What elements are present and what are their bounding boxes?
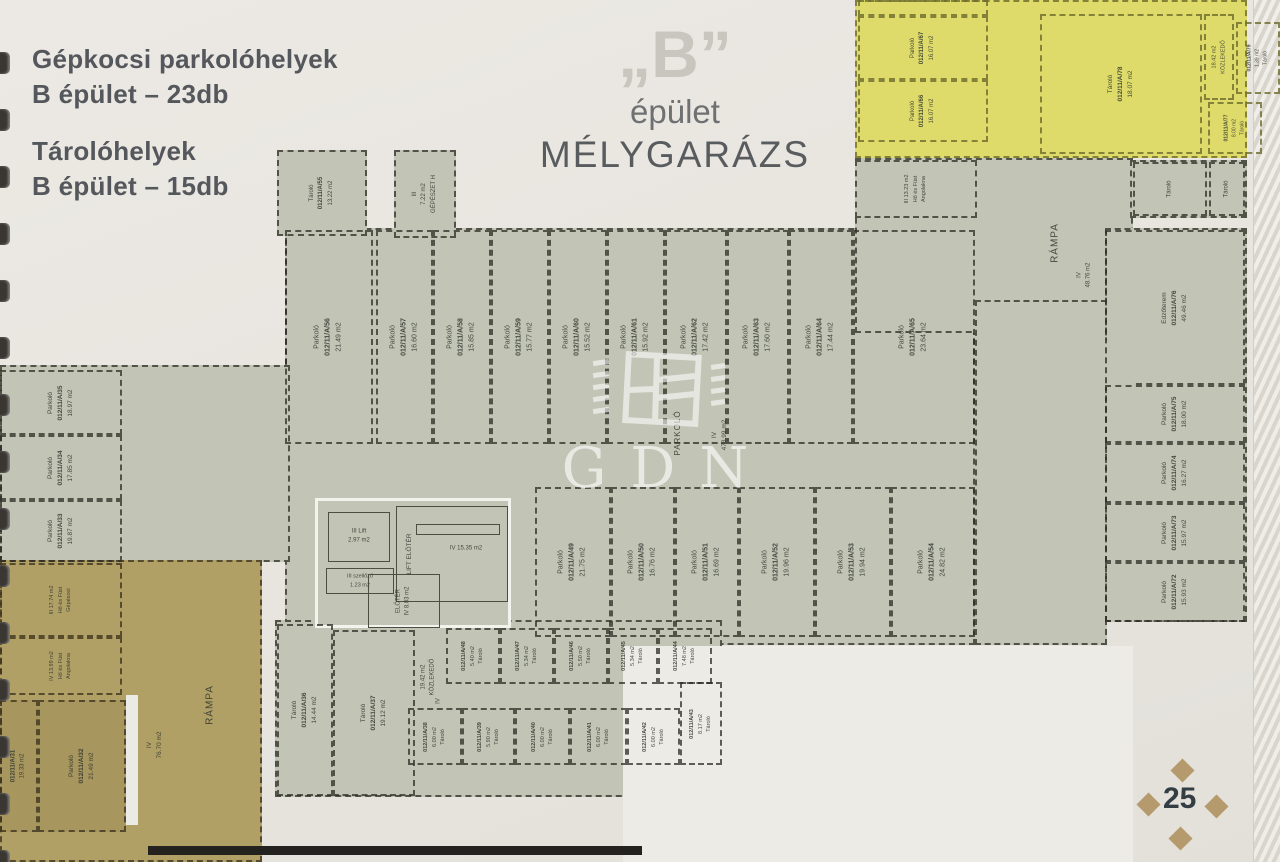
- binding-hole: [0, 679, 10, 701]
- room-parkolo-a51: Parkoló012/11/A/5116.69 m2: [675, 487, 739, 637]
- room-parkolo-a50: Parkoló012/11/A/5016.76 m2: [611, 487, 675, 637]
- room-tarolo-ne-2: Tároló: [1209, 162, 1245, 216]
- room-tarolo-a43: 012/11/A/438.17 m2Tároló: [680, 682, 722, 765]
- binding-hole: [0, 622, 10, 644]
- legend-storage-count: B épület – 15db: [32, 169, 338, 204]
- room-parkolo-y-cut: [858, 0, 988, 16]
- room-tarolo-a37: Tároló012/11/A/3719.12 m2: [333, 630, 415, 796]
- binding-hole: [0, 508, 10, 530]
- room-tarolo-a42: 012/11/A/426.00 m2Tároló: [627, 708, 680, 765]
- binding-hole: [0, 166, 10, 188]
- brochure-page: { "page": { "legend": { "line1": "Gépkoc…: [0, 0, 1280, 862]
- room-tarolo-a46: 012/11/A/465.50 m2Tároló: [554, 628, 608, 684]
- room-edzoterem-a76: Edzőterem012/11/A/7649.46 m2: [1105, 230, 1245, 385]
- room-parkolo-a58: Parkoló012/11/A/5815.85 m2: [433, 230, 491, 444]
- room-lift: III Lift2.97 m2: [328, 512, 390, 562]
- room-parkolo-a57: Parkoló012/11/A/5716.60 m2: [376, 230, 433, 444]
- spiral-binding: [0, 0, 14, 862]
- room-tarolo-a40: 012/11/A/406.00 m2Tároló: [515, 708, 570, 765]
- binding-hole: [0, 280, 10, 302]
- legend: Gépkocsi parkolóhelyek B épület – 23db T…: [32, 42, 338, 204]
- page-number-block: 25: [1128, 756, 1238, 852]
- binding-hole: [0, 223, 10, 245]
- room-parkolo-a54: Parkoló012/11/A/5424.82 m2: [891, 487, 975, 637]
- legend-parking-title: Gépkocsi parkolóhelyek: [32, 42, 338, 77]
- label-lift-eloter-area: IV 15.35 m2: [428, 534, 504, 564]
- room-parkolo-a32: Parkoló012/11/A/3221.49 m2: [38, 700, 126, 832]
- room-ho-fust-gepeszet: III 17.74 m2Hő és FüstGépészet: [0, 563, 122, 637]
- legend-parking-count: B épület – 23db: [32, 77, 338, 112]
- room-parkolo-a52: Parkoló012/11/A/5219.96 m2: [739, 487, 815, 637]
- room-ho-fust-angolakna-ne: III 13.23 m2Hő és FüstAngolakna: [855, 160, 977, 218]
- label-parkolo-main: PARKOLÓ: [655, 375, 700, 490]
- room-parkolo-a49: Parkoló012/11/A/4921.75 m2: [535, 487, 611, 637]
- room-parkolo-a74: Parkoló012/11/A/7416.27 m2: [1105, 443, 1245, 503]
- room-parkolo-a72: Parkoló012/11/A/7215.93 m2: [1105, 562, 1245, 622]
- binding-hole: [0, 451, 10, 473]
- label-rampa-ne-area: IV48.76 m2: [1055, 230, 1115, 320]
- diamond-icon: [1136, 792, 1160, 816]
- page-number: 25: [1163, 782, 1196, 816]
- room-parkolo-a53: Parkoló012/11/A/5319.94 m2: [815, 487, 891, 637]
- room-tarolo-a44: 012/11/A/447.48 m2Tároló: [658, 628, 712, 684]
- label-rampa-sw-area: IV76.70 m2: [125, 690, 185, 800]
- binding-hole: [0, 850, 10, 862]
- room-tarolo-a77: 012/11/A/778.00 m2Tároló: [1208, 102, 1262, 154]
- zone-east-corridor: [975, 300, 1107, 645]
- wall-south-boundary: [148, 846, 642, 855]
- legend-storage-title: Tárolóhelyek: [32, 134, 338, 169]
- binding-hole: [0, 337, 10, 359]
- room-parkolo-a65: Parkoló012/11/A/6523.64 m2: [853, 230, 975, 444]
- binding-hole: [0, 52, 10, 74]
- room-tarolo-a38: 012/11/A/386.00 m2Tároló: [408, 708, 462, 765]
- diamond-icon: [1170, 758, 1194, 782]
- room-tarolo-a36: Tároló012/11/A/3614.44 m2: [277, 624, 333, 796]
- room-gepeszet-h: III7.22 m2GÉPÉSZET H: [394, 150, 456, 238]
- room-tarolo-a79: 012/11/A/791.39 m2Tároló: [1236, 22, 1280, 94]
- title-block: „B” épület MÉLYGARÁZS: [505, 18, 845, 178]
- room-parkolo-a33: Parkoló012/11/A/3319.87 m2: [0, 500, 122, 562]
- room-eloter: ELŐTÉRIV 8.03 m2: [368, 574, 440, 628]
- room-parkolo-a73: Parkoló012/11/A/7315.97 m2: [1105, 503, 1245, 562]
- room-parkolo-a60: Parkoló012/11/A/6015.52 m2: [549, 230, 607, 444]
- room-parkolo-a56: Parkoló012/11/A/5621.49 m2: [285, 230, 373, 444]
- room-ho-fust-angolakna-sw: IV 13.99 m2Hő és FüstAngolakna: [0, 637, 122, 695]
- label-rampa-sw: RÁMPA: [180, 635, 240, 775]
- room-parkolo-a64: Parkoló012/11/A/6417.44 m2: [789, 230, 853, 444]
- room-tarolo-a48: 012/11/A/485.40 m2Tároló: [446, 628, 500, 684]
- room-parkolo-a35: Parkoló012/11/A/3518.97 m2: [0, 370, 122, 435]
- binding-hole: [0, 736, 10, 758]
- room-tarolo-a78: Tároló012/11/A/7818.07 m2: [1040, 14, 1202, 154]
- binding-hole: [0, 109, 10, 131]
- room-parkolo-a75: Parkoló012/11/A/7518.00 m2: [1105, 385, 1245, 443]
- diamond-icon: [1204, 794, 1228, 818]
- label-parkolo-main-area: IV473.99 m2: [697, 385, 742, 485]
- room-parkolo-a66: Parkoló012/11/A/6616.07 m2: [858, 80, 988, 142]
- room-parkolo-a67: Parkoló012/11/A/6716.07 m2: [858, 16, 988, 80]
- title-building: épület: [505, 92, 845, 132]
- room-kozlekedo-ne: 18.42 m2KÖZLEKEDŐ: [1204, 14, 1234, 100]
- room-tarolo-a41: 012/11/A/416.00 m2Tároló: [570, 708, 627, 765]
- room-tarolo-a47: 012/11/A/475.34 m2Tároló: [500, 628, 554, 684]
- room-tarolo-ne-1: Tároló: [1133, 162, 1207, 216]
- binding-hole: [0, 565, 10, 587]
- binding-hole: [0, 793, 10, 815]
- room-tarolo-a45: 012/11/A/455.34 m2Tároló: [608, 628, 658, 684]
- diamond-icon: [1168, 826, 1192, 850]
- room-parkolo-a34: Parkoló012/11/A/3417.85 m2: [0, 435, 122, 500]
- building-letter: „B”: [505, 18, 845, 90]
- binding-hole: [0, 394, 10, 416]
- room-parkolo-a59: Parkoló012/11/A/5915.77 m2: [491, 230, 549, 444]
- page-title: MÉLYGARÁZS: [505, 132, 845, 178]
- room-tarolo-a39: 012/11/A/395.90 m2Tároló: [462, 708, 515, 765]
